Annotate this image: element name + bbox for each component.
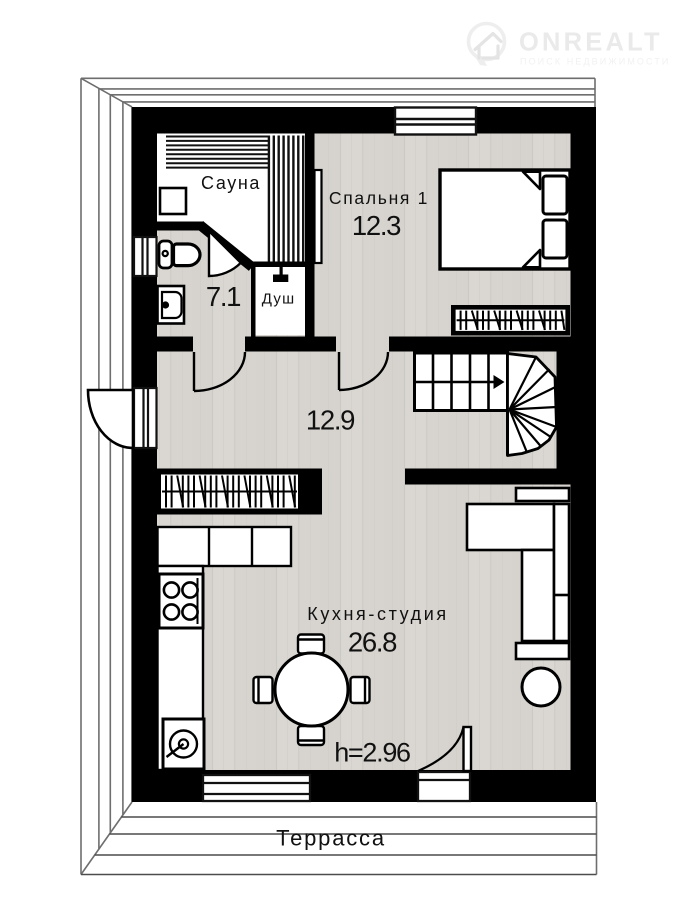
svg-text:ONREALT: ONREALT bbox=[519, 29, 663, 57]
svg-text:7.1: 7.1 bbox=[206, 281, 240, 312]
svg-text:ПОИСК НЕДВИЖИМОСТИ: ПОИСК НЕДВИЖИМОСТИ bbox=[520, 57, 671, 67]
svg-text:Душ: Душ bbox=[262, 291, 296, 308]
svg-text:26.8: 26.8 bbox=[348, 627, 397, 658]
svg-text:Террасса: Террасса bbox=[276, 826, 386, 851]
svg-text:Спальня 1: Спальня 1 bbox=[329, 188, 429, 208]
svg-text:Сауна: Сауна bbox=[201, 173, 261, 193]
svg-text:h=2.96: h=2.96 bbox=[334, 738, 410, 768]
svg-text:Кухня-студия: Кухня-студия bbox=[307, 604, 449, 624]
svg-text:12.9: 12.9 bbox=[306, 405, 354, 436]
svg-text:12.3: 12.3 bbox=[352, 210, 401, 241]
